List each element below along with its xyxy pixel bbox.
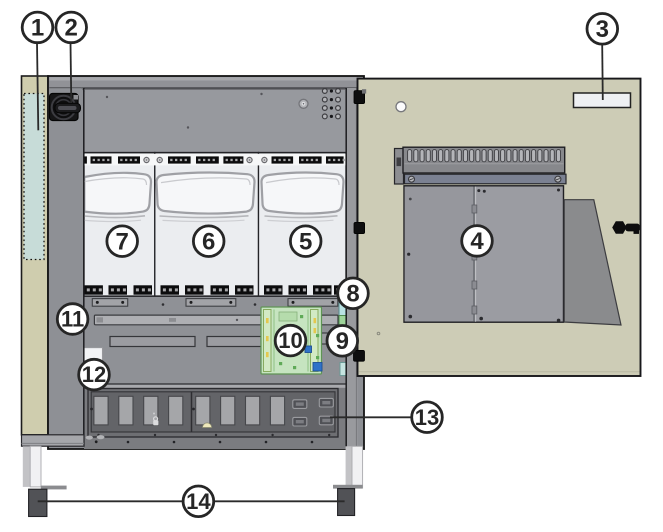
svg-text:1: 1 xyxy=(31,15,44,42)
svg-text:14: 14 xyxy=(186,489,211,514)
svg-text:4: 4 xyxy=(470,228,484,255)
svg-text:2: 2 xyxy=(65,15,78,42)
svg-text:11: 11 xyxy=(61,307,84,332)
svg-text:13: 13 xyxy=(415,405,439,430)
svg-text:8: 8 xyxy=(346,281,359,308)
svg-text:12: 12 xyxy=(82,362,106,387)
svg-text:10: 10 xyxy=(278,328,302,353)
svg-text:5: 5 xyxy=(299,229,312,256)
svg-text:3: 3 xyxy=(596,16,609,43)
svg-text:9: 9 xyxy=(336,328,349,355)
svg-text:7: 7 xyxy=(116,229,129,256)
svg-text:6: 6 xyxy=(202,229,215,256)
